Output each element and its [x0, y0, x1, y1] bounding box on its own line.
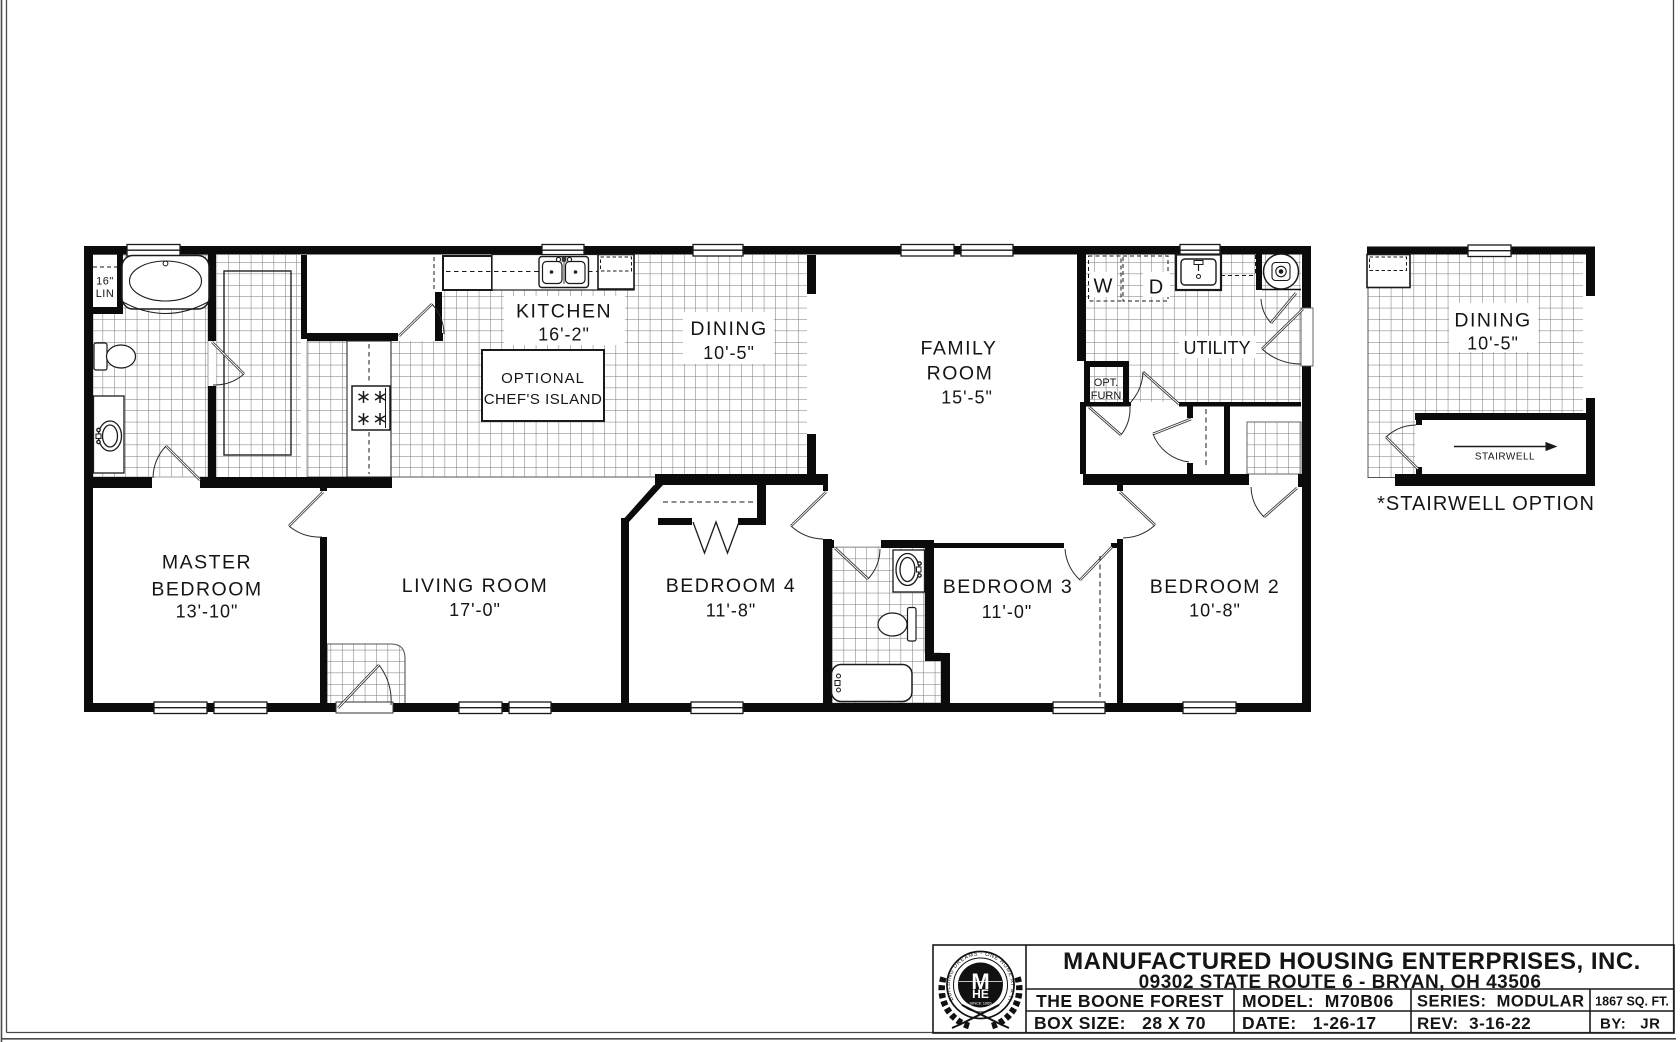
svg-text:LIVING ROOM: LIVING ROOM [402, 575, 549, 597]
svg-text:MASTER: MASTER [162, 552, 252, 574]
svg-text:OPT.: OPT. [1094, 377, 1118, 389]
svg-text:SERIES: MODULAR: SERIES: MODULAR [1417, 993, 1585, 1011]
svg-text:BEDROOM 4: BEDROOM 4 [666, 575, 797, 597]
svg-text:MODEL: M70B06: MODEL: M70B06 [1242, 991, 1394, 1011]
svg-text:17'-0": 17'-0" [449, 600, 501, 620]
svg-text:DINING: DINING [690, 318, 767, 340]
svg-text:SINCE 1965: SINCE 1965 [969, 1001, 992, 1006]
svg-text:DINING: DINING [1454, 310, 1531, 332]
svg-text:13'-10": 13'-10" [176, 602, 239, 622]
svg-text:BEDROOM 3: BEDROOM 3 [943, 576, 1074, 598]
svg-text:THE BOONE FOREST: THE BOONE FOREST [1036, 991, 1224, 1011]
svg-text:11'-0": 11'-0" [982, 602, 1033, 622]
svg-text:*STAIRWELL OPTION: *STAIRWELL OPTION [1377, 493, 1595, 515]
svg-text:16": 16" [96, 276, 114, 288]
svg-text:MANUFACTURED HOUSING ENTERPRIS: MANUFACTURED HOUSING ENTERPRISES, INC. [1063, 948, 1641, 975]
svg-text:09302 STATE ROUTE 6 - BRYAN, O: 09302 STATE ROUTE 6 - BRYAN, OH 43506 [1139, 972, 1542, 993]
svg-text:UTILITY: UTILITY [1183, 338, 1250, 358]
svg-text:10'-8": 10'-8" [1189, 601, 1241, 621]
svg-text:STAIRWELL: STAIRWELL [1475, 452, 1535, 463]
svg-text:10'-5": 10'-5" [1467, 334, 1519, 354]
svg-text:11'-8": 11'-8" [706, 601, 757, 621]
svg-text:W: W [1094, 276, 1113, 298]
svg-text:15'-5": 15'-5" [941, 388, 993, 408]
svg-text:CHEF'S ISLAND: CHEF'S ISLAND [484, 391, 603, 408]
svg-text:FAMILY: FAMILY [921, 338, 998, 360]
svg-text:FURN: FURN [1091, 390, 1122, 402]
svg-text:BEDROOM: BEDROOM [151, 579, 262, 601]
svg-text:BY: JR: BY: JR [1600, 1016, 1660, 1033]
svg-text:BEDROOM 2: BEDROOM 2 [1150, 576, 1281, 598]
svg-text:REV: 3-16-22: REV: 3-16-22 [1417, 1014, 1531, 1033]
svg-text:D: D [1149, 277, 1163, 299]
svg-text:16'-2": 16'-2" [538, 325, 590, 345]
svg-text:1867 SQ. FT.: 1867 SQ. FT. [1595, 995, 1669, 1009]
svg-text:KITCHEN: KITCHEN [516, 301, 612, 323]
svg-text:LIN: LIN [96, 288, 115, 300]
svg-text:BOX SIZE: 28 X 70: BOX SIZE: 28 X 70 [1034, 1013, 1206, 1033]
svg-text:DATE: 1-26-17: DATE: 1-26-17 [1242, 1013, 1377, 1033]
svg-text:OPTIONAL: OPTIONAL [501, 370, 585, 387]
svg-text:ROOM: ROOM [927, 363, 994, 385]
svg-text:HE: HE [972, 987, 989, 1001]
svg-text:10'-5": 10'-5" [703, 343, 755, 363]
